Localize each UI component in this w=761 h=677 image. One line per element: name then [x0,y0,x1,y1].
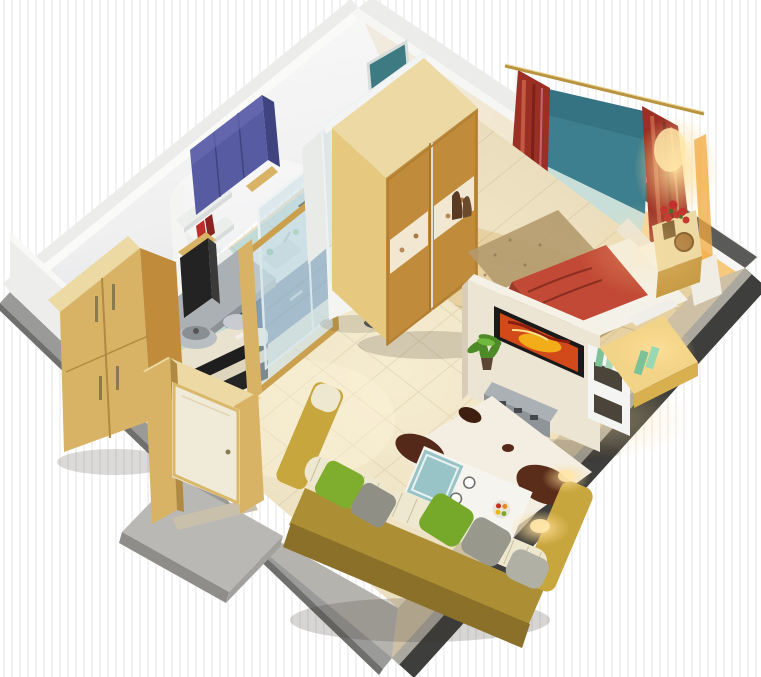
apartment-scene [0,0,761,677]
bedroom-ambient-glow [578,202,718,298]
apartment-floorplan-render [0,0,761,677]
